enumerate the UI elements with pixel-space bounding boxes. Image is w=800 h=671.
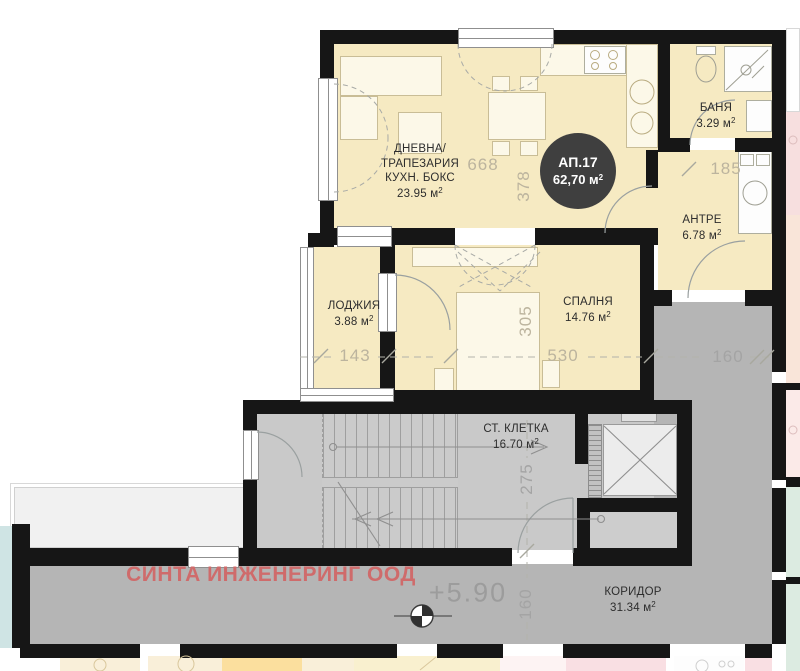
wall [573,548,692,566]
window [318,78,338,201]
lower-room-1 [60,656,140,671]
wall [745,290,772,306]
chair [492,76,510,91]
dimension-530: 530 [547,346,578,366]
terrace-floor [14,487,244,548]
wall [320,228,337,245]
neighbor-room-peach [786,215,800,383]
loggia-bedroom-door [378,273,397,332]
elevator-counterweight [621,413,657,422]
wall [390,228,455,245]
bath-sink [746,100,772,132]
lower-room-8 [674,656,744,671]
wall [677,414,692,560]
wall [563,644,670,658]
wall [243,478,257,552]
neighbor-room-left [0,526,12,648]
wall [640,245,654,392]
chair [520,76,538,91]
floor-plan: ДНЕВНА/ ТРАПЕЗАРИЯ КУХН. БОКС 23.95 м2 Б… [0,0,800,671]
lower-room-9 [745,656,772,671]
wall [243,400,692,414]
toilet-tank [696,46,716,55]
kitchen-counter-side [626,44,658,148]
neighbor-terrace-right [786,28,800,112]
neighbor-room-pink-top [786,112,800,215]
lower-room-4 [302,656,354,671]
lower-room-2 [148,656,222,671]
lower-room-7 [566,656,666,671]
apartment-badge: АП.17 62,70 м2 [540,133,616,209]
shaft-room-floor [585,512,677,548]
wall [585,498,677,512]
stairwell-label: СТ. КЛЕТКА 16.70 м2 [483,422,548,452]
dimension-160-vertical: 160 [516,588,536,619]
elevator-door-rails [588,424,602,498]
living-room-label: ДНЕВНА/ ТРАПЕЗАРИЯ КУХН. БОКС 23.95 м2 [381,142,459,202]
floor-level-value: +5.90 [429,578,507,609]
wall [12,524,30,648]
sofa [340,56,442,96]
wall [577,498,590,548]
lower-room-5 [354,656,500,671]
dimension-275: 275 [517,463,537,494]
lower-room-6 [500,656,566,671]
wall [786,477,800,487]
wall [535,228,658,245]
wall [646,150,658,188]
loggia-glazing [300,388,394,402]
lower-room-3 [222,656,302,671]
chair [492,141,510,156]
wall [786,383,800,390]
cabinet [740,154,754,166]
wall [243,414,257,430]
bathroom-label: БАНЯ 3.29 м2 [696,101,735,131]
wall [380,245,395,273]
dining-table [488,92,546,140]
corridor-label: КОРИДОР 31.34 м2 [604,585,661,615]
wall [786,577,800,584]
elevator-cab [603,424,677,496]
wall [20,644,140,658]
shower-tray [724,46,772,92]
chair [520,141,538,156]
dimension-668: 668 [467,155,498,175]
bedroom-label: СПАЛНЯ 14.76 м2 [563,295,613,325]
wall [745,644,772,658]
cabinet [756,154,770,166]
stair-landing [322,477,458,488]
stair-flight-upper [322,414,458,477]
wall [658,44,670,138]
wall [180,644,397,658]
door-gap [772,480,786,488]
dimension-160-horizontal: 160 [712,347,743,367]
wardrobe [412,247,538,267]
wall [772,30,786,644]
door-gap [772,572,786,580]
loggia-door-window [337,226,392,247]
dimension-185: 185 [710,159,741,179]
wall [437,644,503,658]
window [458,28,554,48]
stair-flight-lower [322,488,458,548]
neighbor-room-pink-mid [786,390,800,477]
dimension-378: 378 [514,170,534,201]
wall [575,414,588,464]
company-watermark: СИНТА ИНЖЕНЕРИНГ ООД [126,563,416,587]
sofa-chaise [340,96,378,140]
dimension-305: 305 [516,305,536,336]
antre-label: АНТРЕ 6.78 м2 [682,213,721,243]
wall [380,330,395,392]
dimension-143: 143 [339,346,370,366]
antre-floor-notch [646,188,658,228]
loggia-label: ЛОДЖИЯ 3.88 м2 [328,299,380,329]
door-gap [772,372,786,383]
wall [652,290,672,306]
wall [658,138,690,152]
loggia-glazing [300,247,314,394]
stair-door-leaf [243,430,259,480]
stove [584,46,626,74]
nightstand [434,368,454,392]
wall [735,138,772,152]
